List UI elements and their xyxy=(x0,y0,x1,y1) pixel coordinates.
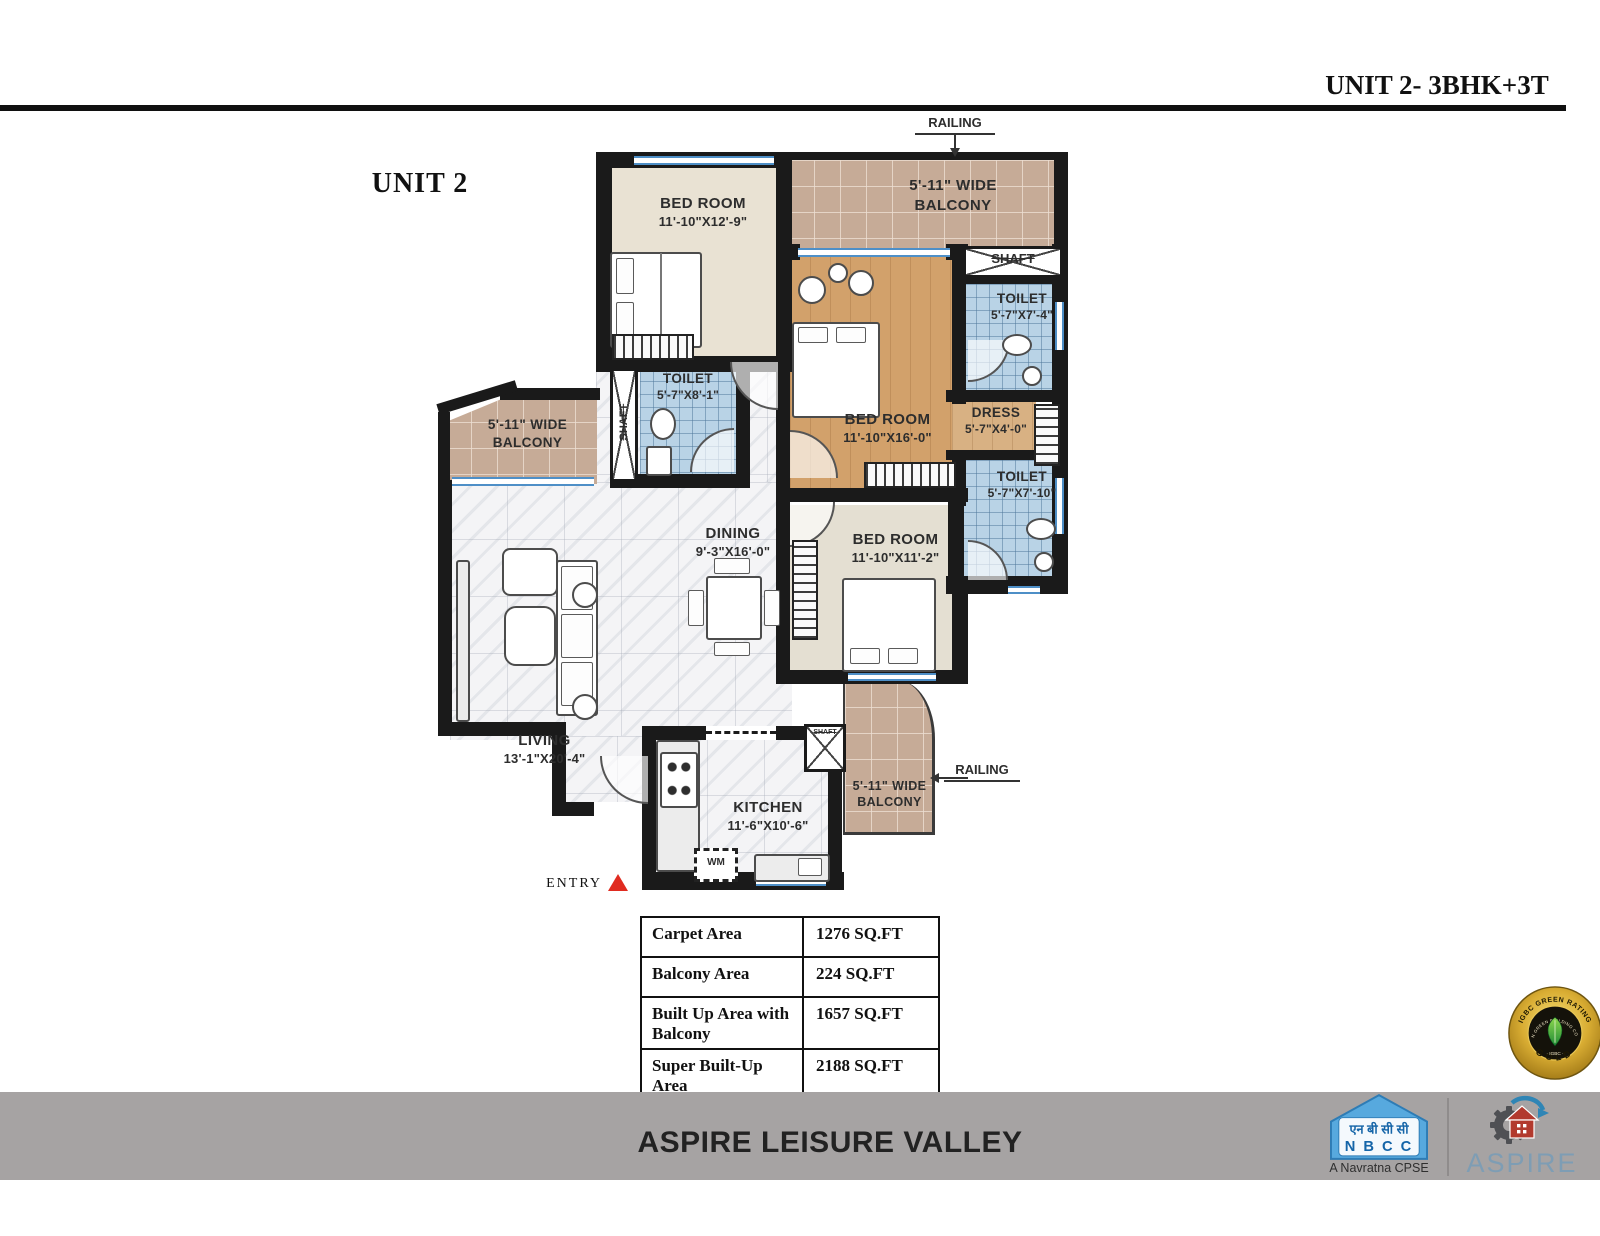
room-name: BALCONY xyxy=(868,196,1038,216)
wall xyxy=(776,372,790,683)
room-name: DRESS xyxy=(955,404,1037,422)
chair-icon xyxy=(798,276,826,304)
room-name: 5'-11" WIDE xyxy=(868,176,1038,196)
wardrobe-icon xyxy=(1034,404,1060,466)
room-dims: 13'-1"X20'-4" xyxy=(462,751,627,768)
area-value: 1276 SQ.FT xyxy=(804,918,938,956)
room-label-kitchen: KITCHEN 11'-6"X10'-6" xyxy=(688,798,848,834)
room-label-dress: DRESS 5'-7"X4'-0" xyxy=(955,404,1037,437)
nbcc-tagline: A Navratna CPSE xyxy=(1318,1161,1440,1175)
wall xyxy=(786,488,968,502)
window xyxy=(1008,586,1040,594)
wardrobe-icon xyxy=(612,334,694,360)
room-dims: 11'-10"X11'-2" xyxy=(808,550,983,567)
room-name: LIVING xyxy=(462,731,627,751)
pillow-icon xyxy=(616,258,634,294)
room-dims: 11'-10"X12'-9" xyxy=(618,214,788,231)
room-dims: 11'-6"X10'-6" xyxy=(688,818,848,835)
footer-divider xyxy=(1447,1098,1449,1176)
room-label-living: LIVING 13'-1"X20'-4" xyxy=(462,731,627,767)
aspire-logo-text: ASPIRE xyxy=(1456,1148,1588,1179)
room-dims: 5'-7"X4'-0" xyxy=(955,422,1037,438)
badge-center-text: · IGBC · xyxy=(1546,1051,1563,1056)
wall xyxy=(946,390,1068,402)
nbcc-hindi-text: एन बी सी सी xyxy=(1348,1121,1409,1136)
header-rule xyxy=(0,105,1566,111)
table-row: Carpet Area 1276 SQ.FT xyxy=(642,918,938,956)
area-label: Balcony Area xyxy=(642,958,804,996)
railing-bottom-arrow-icon xyxy=(930,773,939,783)
washing-machine-label: WM xyxy=(694,856,738,869)
toilet-wc-icon xyxy=(1026,518,1056,540)
toilet-wc-icon xyxy=(1002,334,1032,356)
shaft-kitchen-label: SHAFT xyxy=(804,728,846,737)
chair-icon xyxy=(764,590,780,626)
sofa-cushion xyxy=(561,614,593,658)
toilet-basin-icon xyxy=(646,446,672,476)
room-name: BALCONY xyxy=(455,434,600,452)
railing-bottom-leader xyxy=(938,777,968,779)
chair-icon xyxy=(714,558,750,574)
railing-top-leader xyxy=(954,133,956,148)
room-label-master: BED ROOM 11'-10"X16'-0" xyxy=(800,410,975,446)
room-name: DINING xyxy=(688,524,778,544)
area-value: 1657 SQ.FT xyxy=(804,998,938,1048)
room-label-balcony-left: 5'-11" WIDE BALCONY xyxy=(455,416,600,451)
chair-icon xyxy=(828,263,848,283)
wall xyxy=(438,480,452,734)
wall xyxy=(952,588,968,683)
area-value: 224 SQ.FT xyxy=(804,958,938,996)
nbcc-name-text: N B C C xyxy=(1345,1139,1413,1155)
room-name: TOILET xyxy=(634,370,742,388)
chair-icon xyxy=(688,590,704,626)
room-label-dining: DINING 9'-3"X16'-0" xyxy=(688,524,778,560)
window xyxy=(452,477,594,486)
room-label-balcony-bottom: 5'-11" WIDE BALCONY xyxy=(847,778,932,811)
wall xyxy=(776,152,792,372)
room-dims: 5'-7"X8'-1" xyxy=(634,388,742,404)
unit-label: UNIT 2 xyxy=(360,168,480,200)
table-row: Built Up Area with Balcony 1657 SQ.FT xyxy=(642,996,938,1048)
page: UNIT 2- 3BHK+3T UNIT 2 xyxy=(0,0,1600,1236)
toilet-basin-icon xyxy=(1022,366,1042,386)
entry-arrow-icon xyxy=(608,874,628,891)
wardrobe-icon xyxy=(864,462,956,488)
room-label-bedroom1: BED ROOM 11'-10"X12'-9" xyxy=(618,194,788,230)
entry-opening xyxy=(594,802,648,816)
railing-top-label: RAILING xyxy=(915,115,995,135)
dining-table-icon xyxy=(706,576,762,640)
wall xyxy=(438,412,450,486)
igbc-gold-badge: IGBC GREEN RATING GOLD INDIAN GREEN BUIL… xyxy=(1506,984,1600,1082)
window xyxy=(634,156,774,165)
room-name: BED ROOM xyxy=(618,194,788,214)
room-name: 5'-11" WIDE xyxy=(455,416,600,434)
room-name: TOILET xyxy=(968,468,1076,486)
room-label-toilet3: TOILET 5'-7"X8'-1" xyxy=(634,370,742,403)
pillow-icon xyxy=(888,648,918,664)
entry-label: ENTRY xyxy=(538,876,602,892)
kitchen-opening-dashed-line xyxy=(706,731,776,734)
pillow-icon xyxy=(616,302,634,338)
room-name: BED ROOM xyxy=(808,530,983,550)
side-table-icon xyxy=(572,582,598,608)
side-table-icon xyxy=(572,694,598,720)
toilet-basin-icon xyxy=(1034,552,1054,572)
room-dims: 5'-7"X7'-4" xyxy=(972,308,1072,324)
shaft-left-label: SHAFT xyxy=(617,381,631,463)
page-title: UNIT 2- 3BHK+3T xyxy=(1307,70,1567,101)
wall xyxy=(642,726,656,890)
nbcc-logo: एन बी सी सी N B C C xyxy=(1330,1094,1428,1160)
room-name: BALCONY xyxy=(847,794,932,810)
bed-fold-line xyxy=(660,253,662,347)
chair-icon xyxy=(714,642,750,656)
balcony-bottom-floor xyxy=(843,681,935,835)
room-name: 5'-11" WIDE xyxy=(847,778,932,794)
wall xyxy=(1054,152,1068,252)
armchair-icon xyxy=(502,548,558,596)
room-label-toilet1: TOILET 5'-7"X7'-4" xyxy=(972,290,1072,323)
area-label: Built Up Area with Balcony xyxy=(642,998,804,1048)
pillow-icon xyxy=(798,327,828,343)
pillow-icon xyxy=(850,648,880,664)
aspire-logo-icon xyxy=(1486,1093,1552,1151)
wall xyxy=(786,152,1068,160)
room-name: BED ROOM xyxy=(800,410,975,430)
pillow-icon xyxy=(836,327,866,343)
window xyxy=(798,248,950,257)
room-dims: 5'-7"X7'-10" xyxy=(968,486,1076,502)
room-label-balcony-top: 5'-11" WIDE BALCONY xyxy=(868,176,1038,215)
sink-icon xyxy=(798,858,822,876)
room-dims: 11'-10"X16'-0" xyxy=(800,430,975,447)
aspire-house-body xyxy=(1510,1120,1534,1138)
coffee-table-icon xyxy=(504,606,556,666)
railing-top-arrow-icon xyxy=(950,148,960,157)
area-table: Carpet Area 1276 SQ.FT Balcony Area 224 … xyxy=(640,916,940,1101)
shaft-top-label: SHAFT xyxy=(963,251,1063,268)
tv-unit-icon xyxy=(456,560,470,722)
toilet-wc-icon xyxy=(650,408,676,440)
chair-icon xyxy=(848,270,874,296)
window xyxy=(848,673,936,681)
table-row: Balcony Area 224 SQ.FT xyxy=(642,956,938,996)
room-label-bedroom3: BED ROOM 11'-10"X11'-2" xyxy=(808,530,983,566)
area-label: Carpet Area xyxy=(642,918,804,956)
room-label-toilet2: TOILET 5'-7"X7'-10" xyxy=(968,468,1076,501)
room-name: KITCHEN xyxy=(688,798,848,818)
room-dims: 9'-3"X16'-0" xyxy=(688,544,778,561)
room-name: TOILET xyxy=(972,290,1072,308)
